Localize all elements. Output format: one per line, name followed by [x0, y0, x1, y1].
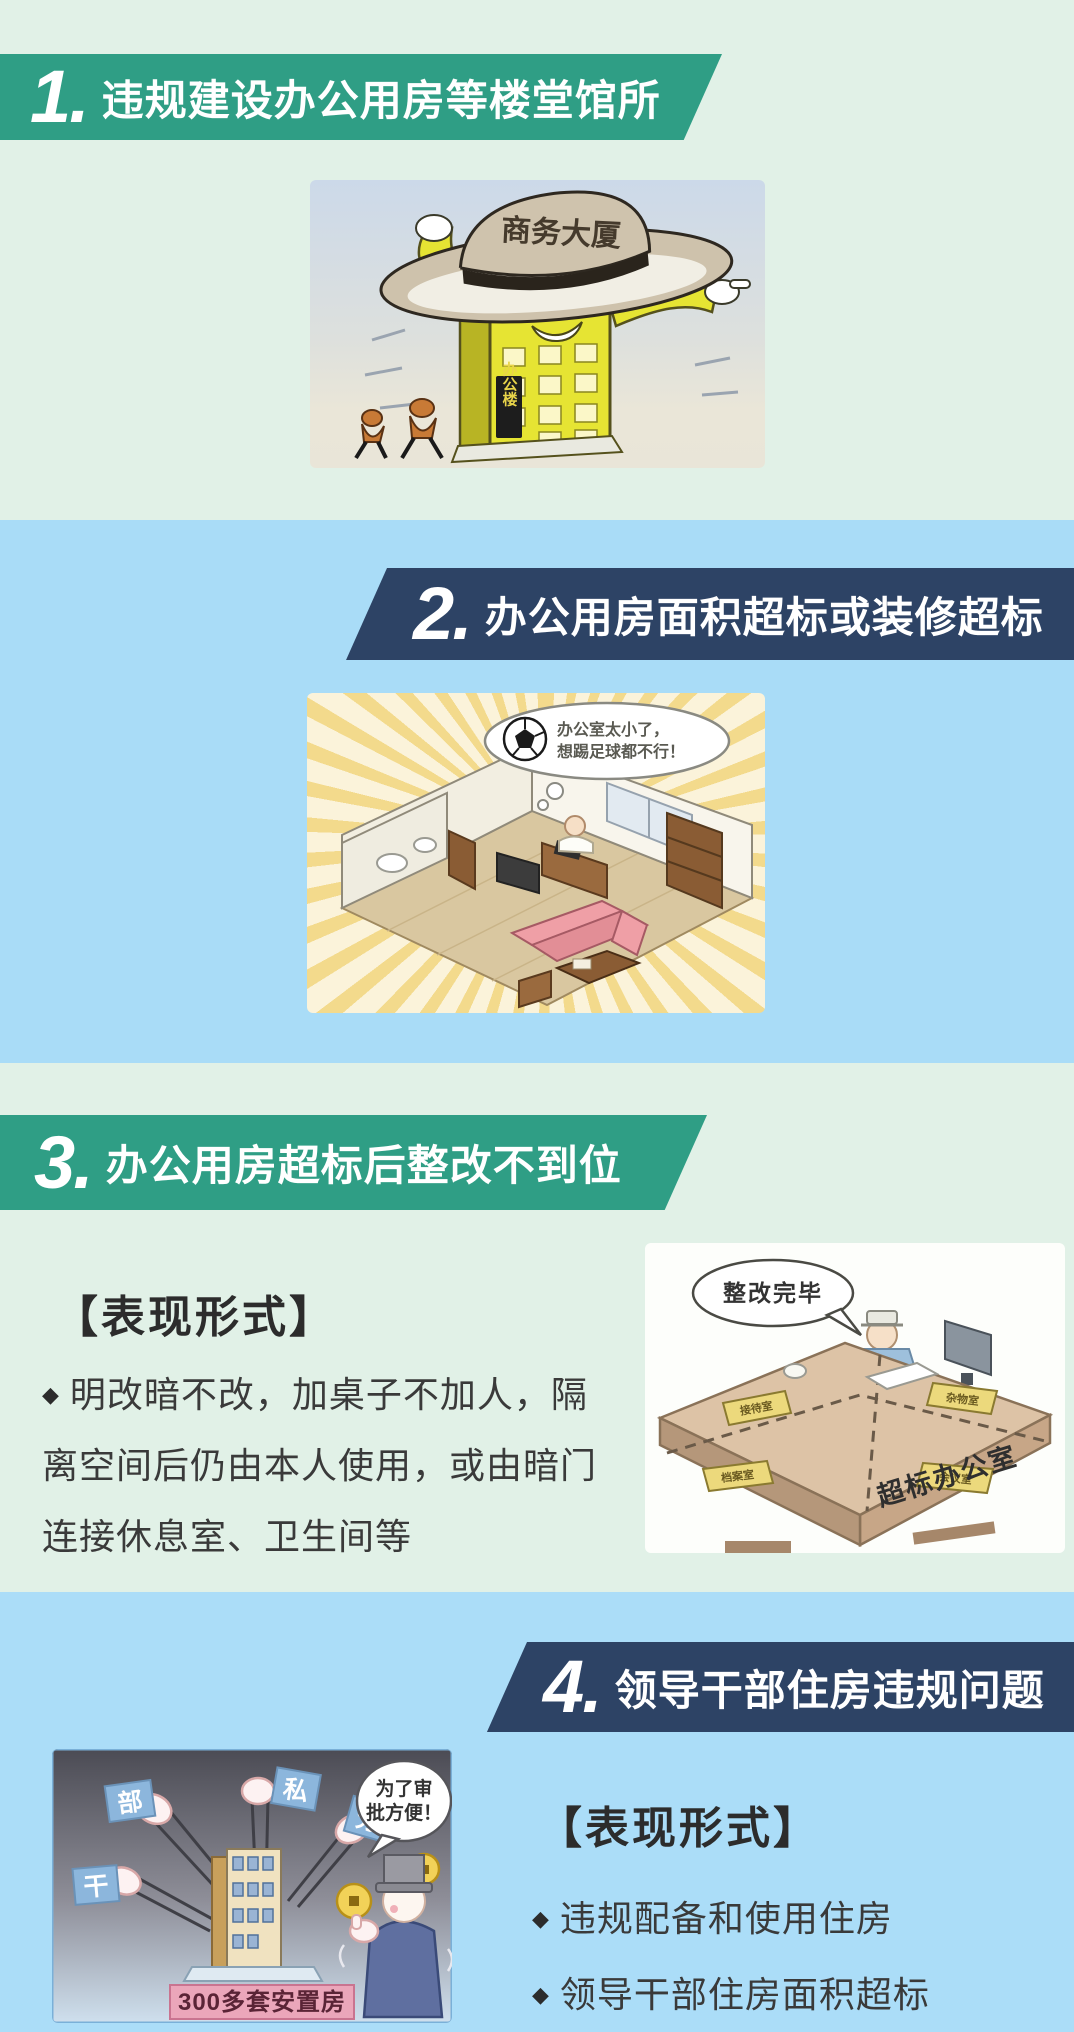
section-2-title: 办公用房面积超标或装修超标 [485, 584, 1044, 645]
oversize-desk-drawing: 接待室 杂物室 档案室 会议室 超标办公室 整改完毕 [645, 1243, 1065, 1553]
section-3-bullet: ◆明改暗不改，加桌子不加人，隔离空间后仍由本人使用，或由暗门连接休息室、卫生间等 [42, 1359, 602, 1572]
diamond-bullet-icon: ◆ [532, 1982, 550, 2007]
flag-si: 私 [281, 1775, 310, 1807]
cup-icon [784, 1364, 806, 1378]
section-3-title: 办公用房超标后整改不到位 [106, 1132, 622, 1193]
cap-icon [867, 1311, 897, 1324]
section-4-bullet-2-text: 领导干部住房面积超标 [560, 1974, 930, 2015]
section-4-banner: 4. 领导干部住房违规问题 [527, 1642, 1074, 1732]
section-4-number: 4. [543, 1650, 601, 1724]
building-sign-text: 办公楼 [501, 361, 518, 408]
thought-text-line2: 想踢足球都不行！ [556, 742, 685, 761]
section-4-subheading: 【表现形式】 [538, 1792, 820, 1856]
section-3-bullet-text: 明改暗不改，加桌子不加人，隔离空间后仍由本人使用，或由暗门连接休息室、卫生间等 [42, 1374, 597, 1557]
flag-bu: 部 [116, 1786, 145, 1818]
oversized-office-drawing: 办公室太小了， 想踢足球都不行！ [307, 693, 765, 1013]
section-3-banner: 3. 办公用房超标后整改不到位 [0, 1115, 707, 1210]
section-4-bullet-2: ◆领导干部住房面积超标 [532, 1966, 930, 2018]
section-1-title: 违规建设办公用房等楼堂馆所 [102, 67, 661, 128]
speech-bubble-icon: 整改完毕 [693, 1260, 861, 1335]
person-icon [565, 816, 585, 836]
section-1-banner: 1. 违规建设办公用房等楼堂馆所 [0, 54, 722, 140]
isometric-room-icon [342, 745, 752, 1007]
section-3: 3. 办公用房超标后整改不到位 【表现形式】 ◆明改暗不改，加桌子不加人，隔离空… [0, 1063, 1074, 1592]
housing-grab-drawing: 部 私 分 干 [52, 1749, 452, 2023]
toilet-icon [377, 854, 407, 872]
section-1-banner-content: 1. 违规建设办公用房等楼堂馆所 [0, 54, 722, 140]
section-3-subheading: 【表现形式】 [54, 1281, 336, 1345]
section-2-number: 2. [413, 577, 471, 651]
illustration-building-with-hat: 办公楼 商务大厦 [310, 180, 765, 468]
monitor-icon [945, 1321, 991, 1385]
section-2-banner-content: 2. 办公用房面积超标或装修超标 [387, 568, 1074, 660]
infographic-poster: 1. 违规建设办公用房等楼堂馆所 [0, 0, 1074, 2032]
section-3-number: 3. [34, 1126, 92, 1200]
illustration-oversized-office: 办公室太小了， 想踢足球都不行！ [307, 693, 765, 1013]
illustration-housing-grab: 部 私 分 干 [52, 1749, 452, 2023]
walking-figures-icon [356, 399, 442, 458]
hat-label-text: 商务大厦 [500, 214, 622, 253]
section-1-number: 1. [30, 60, 88, 134]
thought-text-line1: 办公室太小了， [557, 720, 669, 739]
approval-text-line1: 为了审 [375, 1777, 432, 1800]
diamond-bullet-icon: ◆ [42, 1382, 60, 1407]
building-hat-drawing: 办公楼 商务大厦 [310, 180, 765, 468]
speech-text: 整改完毕 [723, 1280, 823, 1306]
sink-icon [414, 838, 436, 852]
section-4-title: 领导干部住房违规问题 [615, 1657, 1045, 1718]
diamond-bullet-icon: ◆ [532, 1906, 550, 1931]
approval-text-line2: 批方便！ [366, 1801, 442, 1824]
section-4: 4. 领导干部住房违规问题 【表现形式】 ◆违规配备和使用住房 ◆领导干部住房面… [0, 1592, 1074, 2032]
section-1: 1. 违规建设办公用房等楼堂馆所 [0, 0, 1074, 520]
illustration-oversize-desk: 接待室 杂物室 档案室 会议室 超标办公室 整改完毕 [645, 1243, 1065, 1553]
section-4-bullet-1-text: 违规配备和使用住房 [560, 1898, 893, 1939]
section-2-banner: 2. 办公用房面积超标或装修超标 [387, 568, 1074, 660]
section-4-banner-content: 4. 领导干部住房违规问题 [527, 1642, 1074, 1732]
section-4-bullet-1: ◆违规配备和使用住房 [532, 1890, 893, 1942]
flag-gan: 干 [82, 1872, 109, 1902]
soccer-ball-icon [504, 718, 546, 760]
base-banner-text: 300多套安置房 [178, 1988, 346, 2016]
section-2: 2. 办公用房面积超标或装修超标 [0, 520, 1074, 1063]
section-3-banner-content: 3. 办公用房超标后整改不到位 [0, 1115, 707, 1210]
cowboy-hat-icon: 商务大厦 [374, 180, 736, 335]
